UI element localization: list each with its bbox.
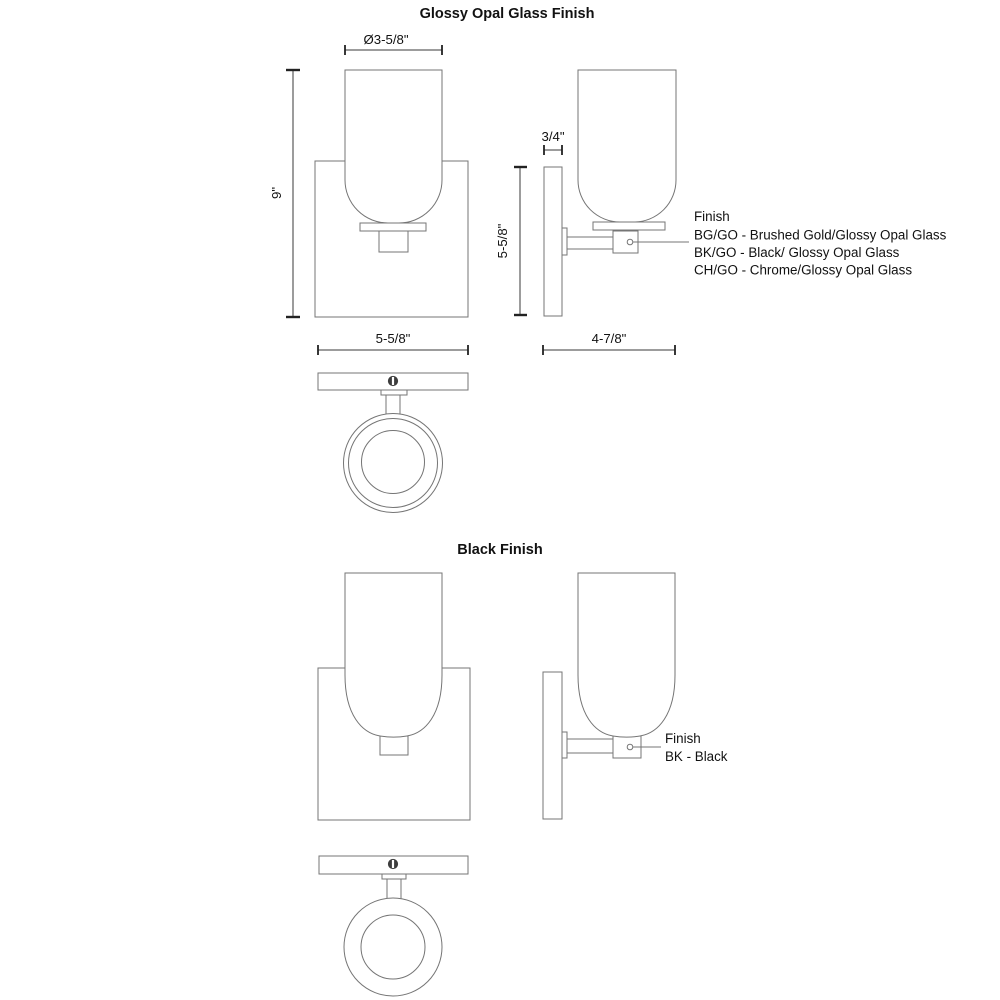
dim-overall-height-label: 9"	[269, 187, 284, 199]
section-title: Black Finish	[457, 542, 542, 558]
finish-label: Finish	[694, 209, 730, 224]
glass-shade	[345, 70, 442, 223]
arm-stem-plan	[386, 395, 400, 415]
shade-outer-circle	[344, 898, 442, 996]
dim-overall-height: 9"	[269, 70, 300, 317]
dim-shade-diameter: Ø3-5/8"	[345, 32, 442, 55]
arm-flange-plan	[382, 874, 406, 879]
finish-option-bg-go: BG/GO - Brushed Gold/Glossy Opal Glass	[694, 228, 947, 243]
glass-shade-side	[578, 70, 676, 222]
wall-plate	[544, 167, 562, 316]
technical-drawing: Glossy Opal Glass Finish Ø3-5/8" 9"	[0, 0, 1000, 1000]
front-view	[315, 70, 468, 317]
mount-block	[562, 732, 567, 758]
socket	[380, 736, 408, 755]
side-view	[544, 70, 676, 316]
plan-view	[319, 856, 468, 996]
finish-option-bk-go: BK/GO - Black/ Glossy Opal Glass	[694, 245, 900, 260]
finish-label: Finish	[665, 731, 701, 746]
finish-option-ch-go: CH/GO - Chrome/Glossy Opal Glass	[694, 263, 912, 278]
section-glossy-opal: Glossy Opal Glass Finish Ø3-5/8" 9"	[269, 6, 947, 513]
finish-legend: Finish BK - Black	[633, 731, 728, 764]
arm-flange-plan	[381, 390, 407, 395]
dim-extension-depth-label: 4-7/8"	[592, 331, 627, 346]
arm-stem-plan	[387, 879, 401, 899]
finish-option-bk: BK - Black	[665, 749, 728, 764]
finish-legend: Finish BG/GO - Brushed Gold/Glossy Opal …	[633, 209, 947, 278]
dim-shade-diameter-label: Ø3-5/8"	[364, 32, 409, 47]
shade-ring-side	[593, 222, 665, 230]
dim-backplate-height: 5-5/8"	[495, 167, 527, 315]
section-black: Black Finish Finish BK - Black	[318, 542, 728, 996]
glass-shade-side	[578, 573, 675, 737]
dim-backplate-thickness-label: 3/4"	[541, 129, 564, 144]
shade-ring	[360, 223, 426, 231]
screw-icon	[388, 376, 397, 385]
spec-sheet: Glossy Opal Glass Finish Ø3-5/8" 9"	[0, 0, 1000, 1000]
plan-view	[318, 373, 468, 513]
dim-extension-depth: 4-7/8"	[543, 331, 675, 355]
front-view	[318, 573, 470, 820]
side-view	[543, 573, 675, 819]
shade-outer-circle	[344, 414, 443, 513]
dim-backplate-width-label: 5-5/8"	[376, 331, 411, 346]
mounting-arm	[567, 739, 613, 753]
mount-block	[562, 228, 567, 255]
wall-plate	[543, 672, 562, 819]
dim-backplate-thickness: 3/4"	[541, 129, 564, 155]
dim-backplate-width: 5-5/8"	[318, 331, 468, 355]
section-title: Glossy Opal Glass Finish	[420, 6, 595, 22]
dim-backplate-height-label: 5-5/8"	[495, 223, 510, 258]
socket	[379, 231, 408, 252]
screw-icon	[388, 859, 397, 868]
mounting-arm	[567, 237, 613, 249]
glass-shade	[345, 573, 442, 737]
